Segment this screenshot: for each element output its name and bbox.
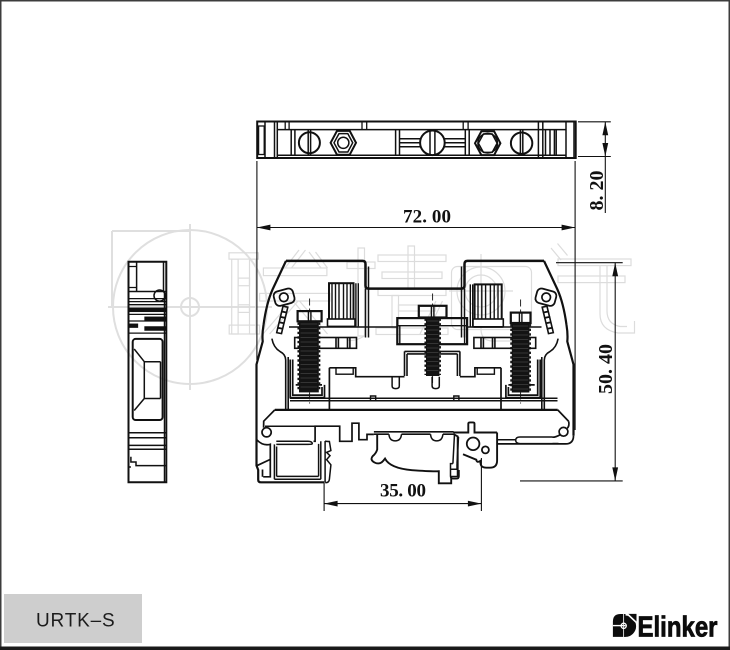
svg-text:Elinker: Elinker xyxy=(638,612,718,644)
svg-text:50. 40: 50. 40 xyxy=(595,344,617,394)
svg-text:URTK–S: URTK–S xyxy=(36,611,115,632)
svg-text:72. 00: 72. 00 xyxy=(403,207,451,228)
svg-text:35. 00: 35. 00 xyxy=(380,481,426,502)
svg-text:8. 20: 8. 20 xyxy=(586,171,608,211)
